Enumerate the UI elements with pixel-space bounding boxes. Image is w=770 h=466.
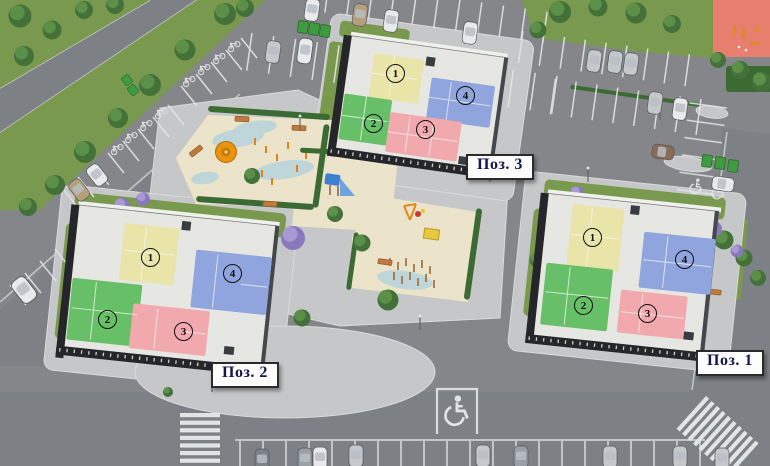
bench-icon bbox=[235, 116, 249, 122]
car-icon bbox=[383, 9, 400, 33]
section-number-badge[interactable]: 1 bbox=[386, 64, 405, 83]
tree-icon bbox=[354, 235, 371, 252]
stairwell bbox=[683, 331, 694, 340]
tree-icon bbox=[750, 270, 766, 286]
tree-icon bbox=[626, 3, 647, 24]
section-number-badge[interactable]: 1 bbox=[583, 228, 602, 247]
tree-icon bbox=[75, 1, 93, 19]
tree-icon bbox=[14, 46, 34, 66]
section-number-badge[interactable]: 3 bbox=[174, 322, 193, 341]
car-icon bbox=[607, 50, 624, 74]
car-icon bbox=[514, 446, 528, 466]
car-icon bbox=[298, 448, 312, 466]
car-icon bbox=[586, 49, 603, 73]
tree-icon bbox=[163, 387, 173, 397]
position-label-pos-3[interactable]: Поз. 3 bbox=[466, 154, 534, 180]
car-icon bbox=[623, 52, 640, 76]
section-number-badge[interactable]: 4 bbox=[456, 86, 475, 105]
car-icon bbox=[352, 3, 369, 27]
section-number-badge[interactable]: 3 bbox=[416, 120, 435, 139]
car-icon bbox=[255, 449, 269, 466]
car-icon bbox=[265, 40, 282, 64]
dumpster-icon bbox=[701, 155, 712, 168]
tree-icon bbox=[710, 52, 726, 68]
carousel-icon bbox=[216, 142, 237, 163]
section-number-badge[interactable]: 1 bbox=[141, 248, 160, 267]
stairwell bbox=[224, 346, 235, 355]
building-pos-1-section-2[interactable] bbox=[540, 263, 613, 332]
car-icon bbox=[349, 445, 363, 466]
tree-icon bbox=[45, 175, 65, 195]
tree-icon bbox=[294, 310, 311, 327]
dumpster-icon bbox=[319, 24, 331, 37]
lilac-bush-icon bbox=[136, 192, 150, 206]
tree-icon bbox=[9, 5, 32, 28]
tree-icon bbox=[74, 141, 96, 163]
car-icon bbox=[711, 176, 735, 193]
car-icon bbox=[304, 0, 321, 22]
section-number-badge[interactable]: 2 bbox=[98, 310, 117, 329]
dumpster-icon bbox=[308, 22, 320, 35]
tree-icon bbox=[731, 61, 749, 79]
tree-icon bbox=[108, 108, 128, 128]
dumpster-icon bbox=[714, 157, 725, 170]
section-number-badge[interactable]: 3 bbox=[638, 304, 657, 323]
section-number-badge[interactable]: 4 bbox=[223, 264, 242, 283]
dumpster-icon bbox=[297, 20, 309, 33]
tree-icon bbox=[549, 1, 571, 23]
building-pos-2-section-3[interactable] bbox=[129, 303, 210, 356]
tree-icon bbox=[175, 40, 196, 61]
lilac-bush-icon bbox=[731, 245, 744, 258]
position-label-pos-1[interactable]: Поз. 1 bbox=[696, 350, 764, 376]
tree-icon bbox=[139, 74, 161, 96]
tree-icon bbox=[19, 198, 37, 216]
stairwell bbox=[181, 221, 191, 231]
car-icon bbox=[462, 21, 479, 45]
tree-icon bbox=[43, 21, 62, 40]
section-number-badge[interactable]: 2 bbox=[364, 114, 383, 133]
tree-icon bbox=[214, 3, 236, 25]
car-icon bbox=[715, 448, 729, 466]
tree-icon bbox=[663, 15, 681, 33]
position-label-pos-2[interactable]: Поз. 2 bbox=[211, 362, 279, 388]
tree-icon bbox=[244, 168, 260, 184]
tree-icon bbox=[378, 290, 399, 311]
bench-icon bbox=[263, 201, 277, 207]
sandbox-icon bbox=[423, 228, 439, 240]
stairwell bbox=[630, 205, 640, 215]
car-icon bbox=[603, 446, 617, 466]
car-icon bbox=[673, 446, 687, 466]
section-number-badge[interactable]: 4 bbox=[675, 250, 694, 269]
lilac-bush-icon bbox=[281, 226, 305, 250]
building-pos-1 bbox=[525, 189, 726, 363]
tree-icon bbox=[530, 22, 547, 39]
car-icon bbox=[672, 97, 689, 121]
car-icon bbox=[651, 144, 675, 161]
car-icon bbox=[313, 447, 327, 466]
sports-court bbox=[713, 0, 770, 57]
stairwell bbox=[425, 56, 435, 66]
bench-icon bbox=[292, 125, 306, 131]
tree-icon bbox=[327, 206, 343, 222]
dumpster-icon bbox=[727, 160, 738, 173]
section-number-badge[interactable]: 2 bbox=[574, 296, 593, 315]
car-icon bbox=[647, 91, 664, 115]
building-pos-2 bbox=[55, 200, 282, 379]
car-icon bbox=[476, 445, 490, 466]
site-plan: 1 2 3 4 1 2 3 4 1 2 3 4 Поз. 3 Поз. 2 По… bbox=[0, 0, 770, 466]
site-plan-canvas bbox=[0, 0, 770, 466]
